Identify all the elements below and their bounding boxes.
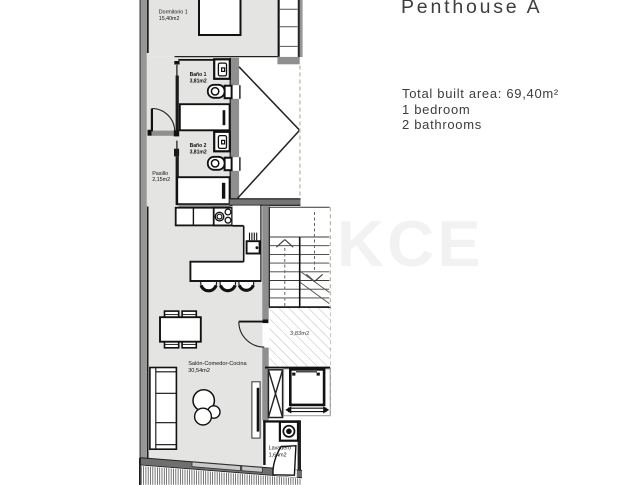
svg-text:15,40m2: 15,40m2 xyxy=(159,16,180,22)
svg-text:3,83m2: 3,83m2 xyxy=(290,331,309,337)
svg-text:Dormitorio 1: Dormitorio 1 xyxy=(159,10,188,16)
svg-text:3,81m2: 3,81m2 xyxy=(190,149,207,155)
svg-text:Baño 1: Baño 1 xyxy=(190,72,207,78)
svg-text:30,54m2: 30,54m2 xyxy=(188,368,210,374)
svg-text:3,81m2: 3,81m2 xyxy=(190,78,207,84)
svg-text:Pasillo: Pasillo xyxy=(152,171,168,177)
svg-text:1,64m2: 1,64m2 xyxy=(269,452,287,458)
svg-text:Baño 2: Baño 2 xyxy=(190,143,207,149)
svg-text:2,15m2: 2,15m2 xyxy=(152,177,170,183)
svg-text:Salón-Comedor-Cocina: Salón-Comedor-Cocina xyxy=(188,361,247,367)
svg-text:Lavadero: Lavadero xyxy=(269,446,291,452)
